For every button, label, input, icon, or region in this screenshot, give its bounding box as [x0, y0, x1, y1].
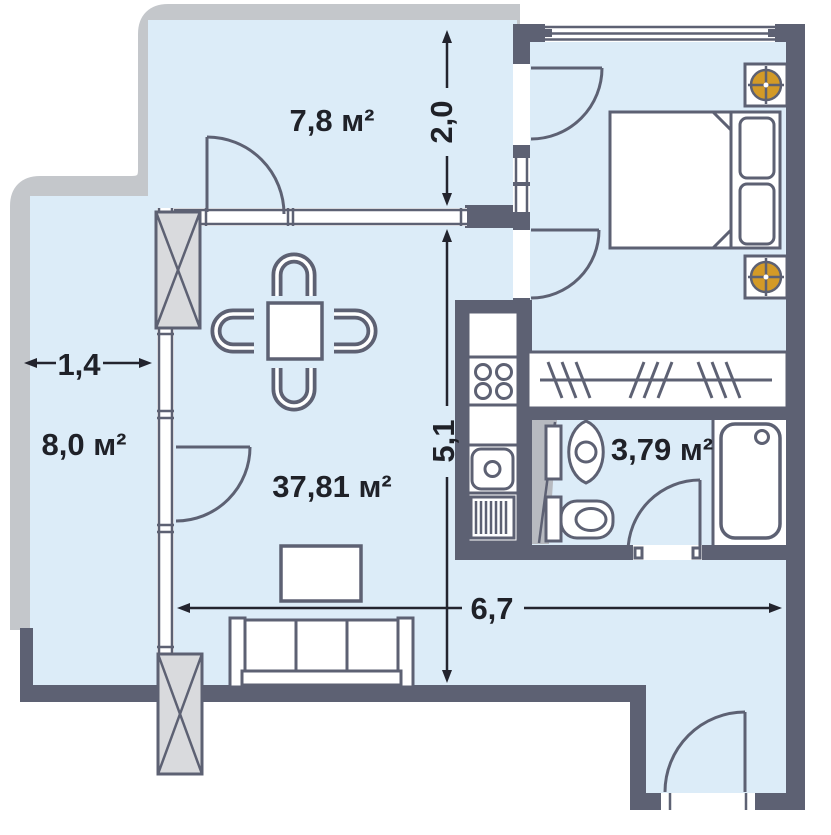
kitchen-counter	[468, 312, 518, 542]
wardrobe-hangers	[528, 352, 787, 408]
kitchen-bottom-wall	[455, 542, 532, 560]
room-label-living: 37,81 м²	[272, 469, 391, 504]
right-wall	[786, 24, 805, 810]
dim-label-2-0: 2,0	[424, 100, 459, 143]
bedroom-balcony-door-opening	[513, 64, 530, 145]
bathroom-bottom-wall-left	[530, 545, 633, 560]
bathroom-top-wall	[530, 408, 787, 420]
bedroom-door-opening	[513, 230, 530, 298]
bathtub	[721, 424, 780, 538]
drainer	[471, 497, 514, 538]
pillow	[740, 184, 774, 244]
floor-plan: 7,8 м² 8,0 м² 37,81 м² 3,79 м² 1,4 2,0 5…	[0, 0, 831, 835]
hall-floor	[640, 688, 788, 796]
hall-corner-wall	[465, 205, 513, 228]
sofa	[230, 618, 413, 687]
kitchen-sink	[472, 449, 513, 489]
pillow	[740, 118, 774, 178]
dim-label-6-7: 6,7	[470, 591, 513, 626]
ventilation-fan	[745, 256, 787, 298]
room-label-bathroom: 3,79 м²	[611, 432, 713, 467]
dim-label-5-1: 5,1	[426, 419, 461, 462]
dining-table	[268, 303, 322, 359]
washbasin	[546, 421, 603, 483]
bottom-left-wall	[20, 685, 646, 702]
structural-column	[158, 654, 202, 774]
toilet	[546, 497, 613, 541]
kitchen-right-wall	[518, 300, 532, 560]
structural-column	[156, 212, 200, 328]
step-wall	[630, 700, 646, 795]
ventilation-fan	[745, 64, 787, 106]
dim-label-1-4: 1,4	[57, 347, 101, 382]
entrance-threshold	[661, 793, 755, 810]
room-label-balcony-left: 8,0 м²	[42, 427, 127, 462]
room-label-balcony-top: 7,8 м²	[290, 103, 375, 138]
floor-plan-svg: 7,8 м² 8,0 м² 37,81 м² 3,79 м² 1,4 2,0 5…	[0, 0, 831, 835]
balcony-end-wall	[20, 628, 33, 702]
double-bed	[610, 112, 780, 248]
bathroom-bottom-wall-right	[700, 545, 787, 560]
tv-stand	[281, 546, 361, 601]
